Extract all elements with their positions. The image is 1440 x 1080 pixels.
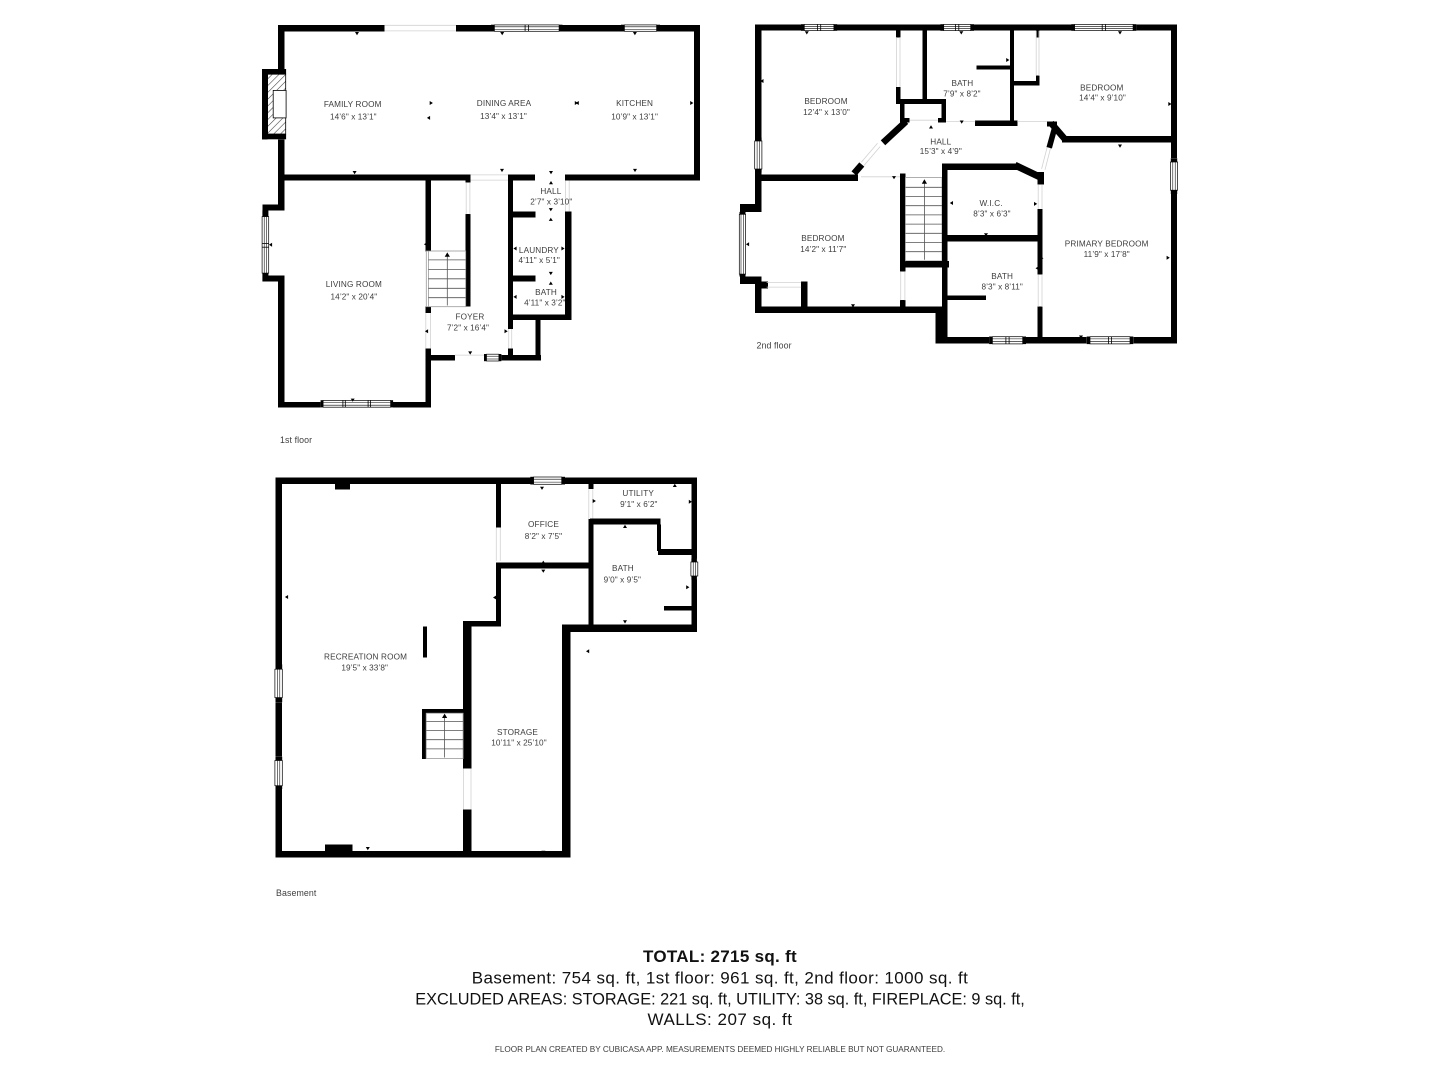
svg-text:8’2" x 7’5": 8’2" x 7’5" xyxy=(525,532,562,541)
svg-text:LAUNDRY: LAUNDRY xyxy=(519,246,559,255)
svg-text:4’11" x 5’1": 4’11" x 5’1" xyxy=(518,256,559,265)
svg-text:11’9" x 17’8": 11’9" x 17’8" xyxy=(1084,250,1130,259)
svg-text:RECREATION ROOM: RECREATION ROOM xyxy=(324,653,407,662)
svg-text:15’3" x 4’9": 15’3" x 4’9" xyxy=(920,147,962,156)
svg-text:HALL: HALL xyxy=(540,187,561,196)
svg-text:12’4" x 13’0": 12’4" x 13’0" xyxy=(803,108,850,117)
svg-text:W.I.C.: W.I.C. xyxy=(980,199,1003,208)
svg-text:HALL: HALL xyxy=(930,138,951,147)
svg-text:14’2" x 20’4": 14’2" x 20’4" xyxy=(331,292,378,301)
svg-text:BATH: BATH xyxy=(951,79,973,88)
svg-text:8’3" x 6’3": 8’3" x 6’3" xyxy=(973,210,1010,219)
svg-text:9’1" x 6’2": 9’1" x 6’2" xyxy=(620,500,657,509)
svg-text:Basement: 754 sq. ft, 1st floo: Basement: 754 sq. ft, 1st floor: 961 sq.… xyxy=(472,969,968,988)
svg-text:BEDROOM: BEDROOM xyxy=(1080,83,1123,92)
svg-text:9’0" x 9’5": 9’0" x 9’5" xyxy=(604,576,641,585)
svg-text:7’2" x 16’4": 7’2" x 16’4" xyxy=(447,323,489,332)
svg-text:BATH: BATH xyxy=(535,288,557,297)
svg-text:1st floor: 1st floor xyxy=(280,435,312,445)
svg-text:14’6" x 13’1": 14’6" x 13’1" xyxy=(330,112,377,121)
svg-text:10’9" x 13’1": 10’9" x 13’1" xyxy=(611,113,658,122)
svg-text:19’5" x 33’8": 19’5" x 33’8" xyxy=(341,663,388,672)
svg-text:KITCHEN: KITCHEN xyxy=(616,99,653,108)
svg-text:DINING AREA: DINING AREA xyxy=(477,99,532,108)
svg-text:PRIMARY BEDROOM: PRIMARY BEDROOM xyxy=(1065,239,1149,248)
svg-text:EXCLUDED AREAS: STORAGE: 221 s: EXCLUDED AREAS: STORAGE: 221 sq. ft, UTI… xyxy=(415,991,1025,1009)
svg-text:LIVING ROOM: LIVING ROOM xyxy=(326,280,382,289)
svg-text:BEDROOM: BEDROOM xyxy=(804,97,847,106)
svg-text:4’11" x 3’2": 4’11" x 3’2" xyxy=(524,298,565,307)
svg-text:BEDROOM: BEDROOM xyxy=(801,234,844,243)
svg-text:FAMILY ROOM: FAMILY ROOM xyxy=(324,100,382,109)
svg-text:FOYER: FOYER xyxy=(456,312,485,321)
svg-text:2nd floor: 2nd floor xyxy=(757,341,792,351)
svg-text:OFFICE: OFFICE xyxy=(528,520,559,529)
svg-text:8’3" x 8’11": 8’3" x 8’11" xyxy=(981,282,1022,291)
svg-text:7’9" x 8’2": 7’9" x 8’2" xyxy=(943,89,980,98)
svg-text:13’4" x 13’1": 13’4" x 13’1" xyxy=(480,112,527,121)
svg-text:Basement: Basement xyxy=(276,888,317,898)
svg-text:BATH: BATH xyxy=(612,564,634,573)
svg-text:14’2" x 11’7": 14’2" x 11’7" xyxy=(800,245,846,254)
svg-text:FLOOR PLAN CREATED BY CUBICASA: FLOOR PLAN CREATED BY CUBICASA APP. MEAS… xyxy=(495,1045,945,1054)
svg-text:WALLS: 207 sq. ft: WALLS: 207 sq. ft xyxy=(648,1010,793,1029)
svg-text:TOTAL: 2715 sq. ft: TOTAL: 2715 sq. ft xyxy=(643,947,797,966)
svg-text:UTILITY: UTILITY xyxy=(622,489,654,498)
svg-text:10’11" x 25’10": 10’11" x 25’10" xyxy=(491,739,546,748)
svg-text:STORAGE: STORAGE xyxy=(497,728,538,737)
svg-text:14’4" x 9’10": 14’4" x 9’10" xyxy=(1079,93,1126,102)
svg-text:2’7" x 3’10": 2’7" x 3’10" xyxy=(530,198,572,207)
svg-text:BATH: BATH xyxy=(991,272,1013,281)
